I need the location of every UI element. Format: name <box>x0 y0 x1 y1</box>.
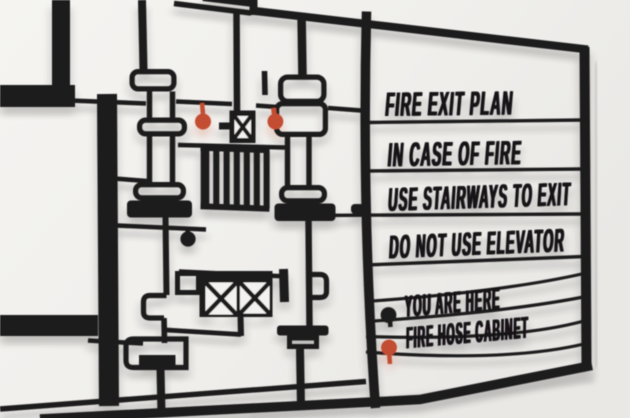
svg-text:FIRE EXIT PLAN: FIRE EXIT PLAN <box>385 84 516 123</box>
svg-text:IN CASE OF FIRE: IN CASE OF FIRE <box>387 134 524 174</box>
svg-text:USE STAIRWAYS TO EXIT: USE STAIRWAYS TO EXIT <box>388 175 573 219</box>
svg-text:DO NOT USE ELEVATOR: DO NOT USE ELEVATOR <box>389 221 567 266</box>
